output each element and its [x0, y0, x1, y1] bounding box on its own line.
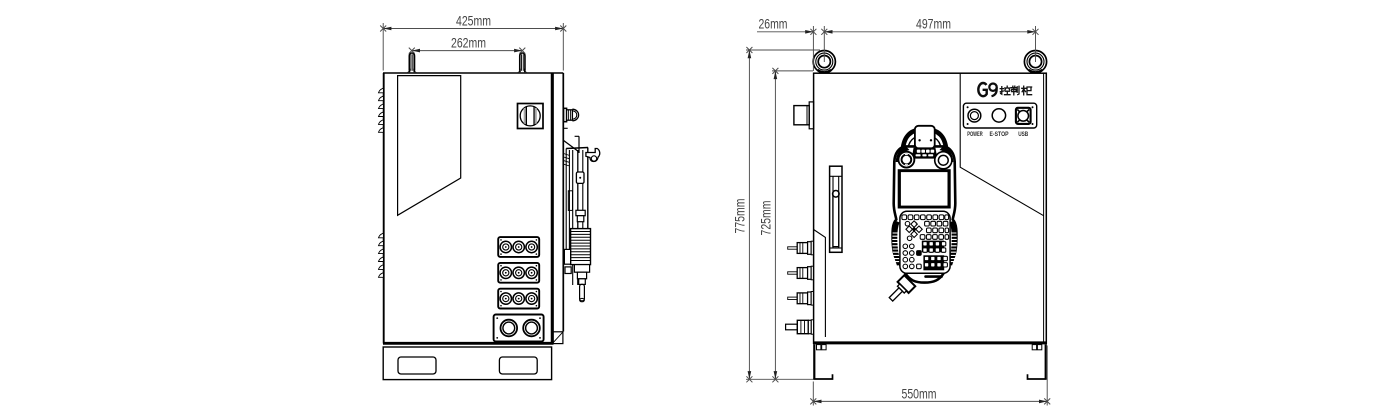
svg-text:425mm: 425mm: [456, 13, 491, 29]
svg-text:262mm: 262mm: [451, 35, 486, 51]
svg-text:E-STOP: E-STOP: [990, 132, 1009, 138]
svg-text:497mm: 497mm: [916, 16, 951, 32]
svg-text:26mm: 26mm: [759, 16, 788, 32]
svg-text:POWER: POWER: [967, 132, 983, 138]
svg-text:775mm: 775mm: [732, 199, 748, 234]
svg-text:550mm: 550mm: [902, 385, 937, 401]
svg-text:725mm: 725mm: [758, 201, 774, 236]
svg-text:USB: USB: [1018, 132, 1029, 138]
